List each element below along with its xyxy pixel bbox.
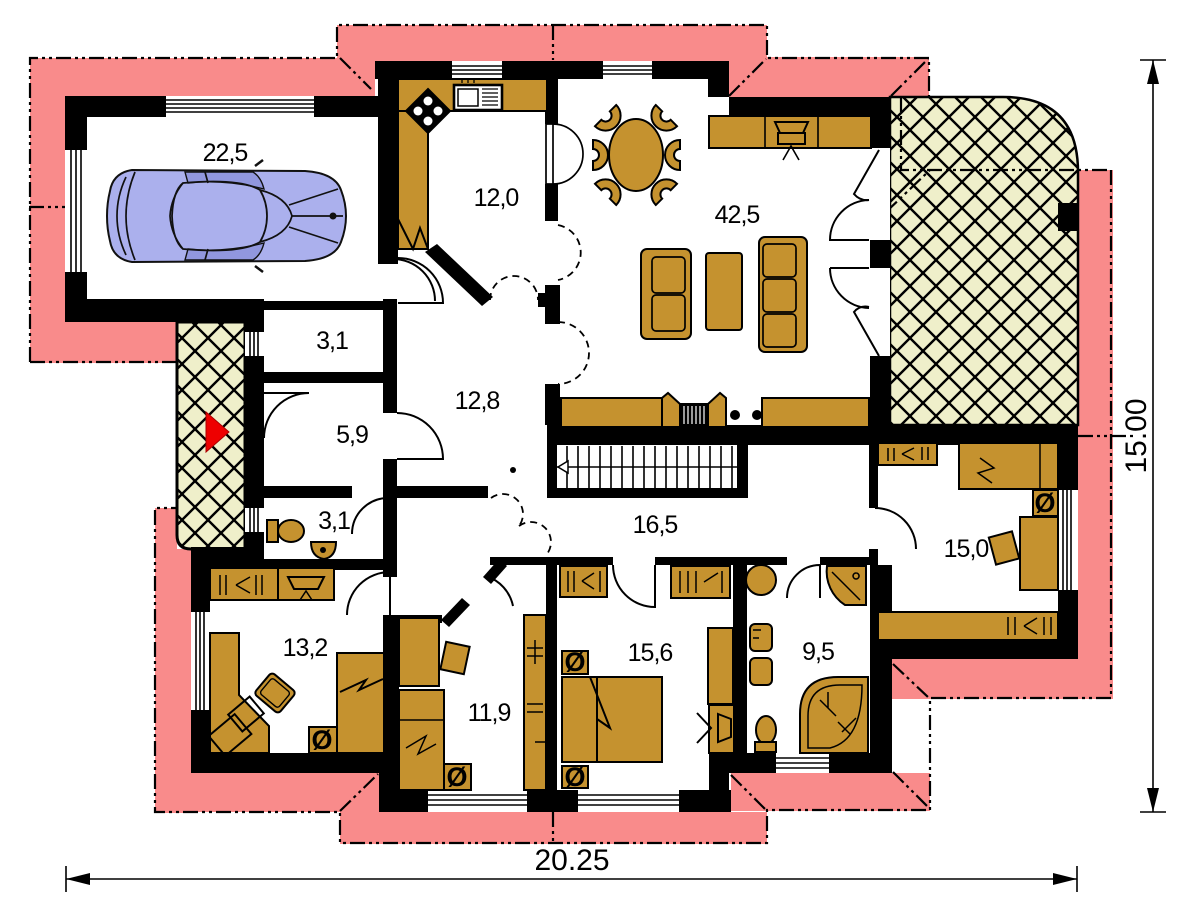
svg-text:9,5: 9,5 (802, 638, 834, 666)
svg-text:3,1: 3,1 (316, 327, 348, 355)
svg-text:3,1: 3,1 (318, 507, 350, 535)
svg-text:Ø: Ø (311, 725, 332, 755)
svg-text:15,0: 15,0 (944, 535, 989, 563)
svg-text:15,6: 15,6 (628, 639, 673, 667)
svg-text:42,5: 42,5 (715, 201, 760, 229)
svg-text:16,5: 16,5 (633, 511, 678, 539)
svg-text:12,0: 12,0 (474, 184, 519, 212)
svg-text:Ø: Ø (446, 762, 467, 792)
svg-text:15.00: 15.00 (1120, 398, 1153, 473)
svg-text:13,2: 13,2 (283, 634, 328, 662)
svg-text:Ø: Ø (564, 762, 585, 792)
svg-text:22,5: 22,5 (203, 139, 248, 167)
svg-text:Ø: Ø (564, 647, 585, 677)
svg-text:11,9: 11,9 (468, 699, 511, 727)
svg-text:12,8: 12,8 (455, 387, 500, 415)
svg-text:5,9: 5,9 (336, 421, 368, 449)
svg-text:Ø: Ø (1034, 488, 1055, 518)
svg-text:20.25: 20.25 (534, 844, 609, 877)
